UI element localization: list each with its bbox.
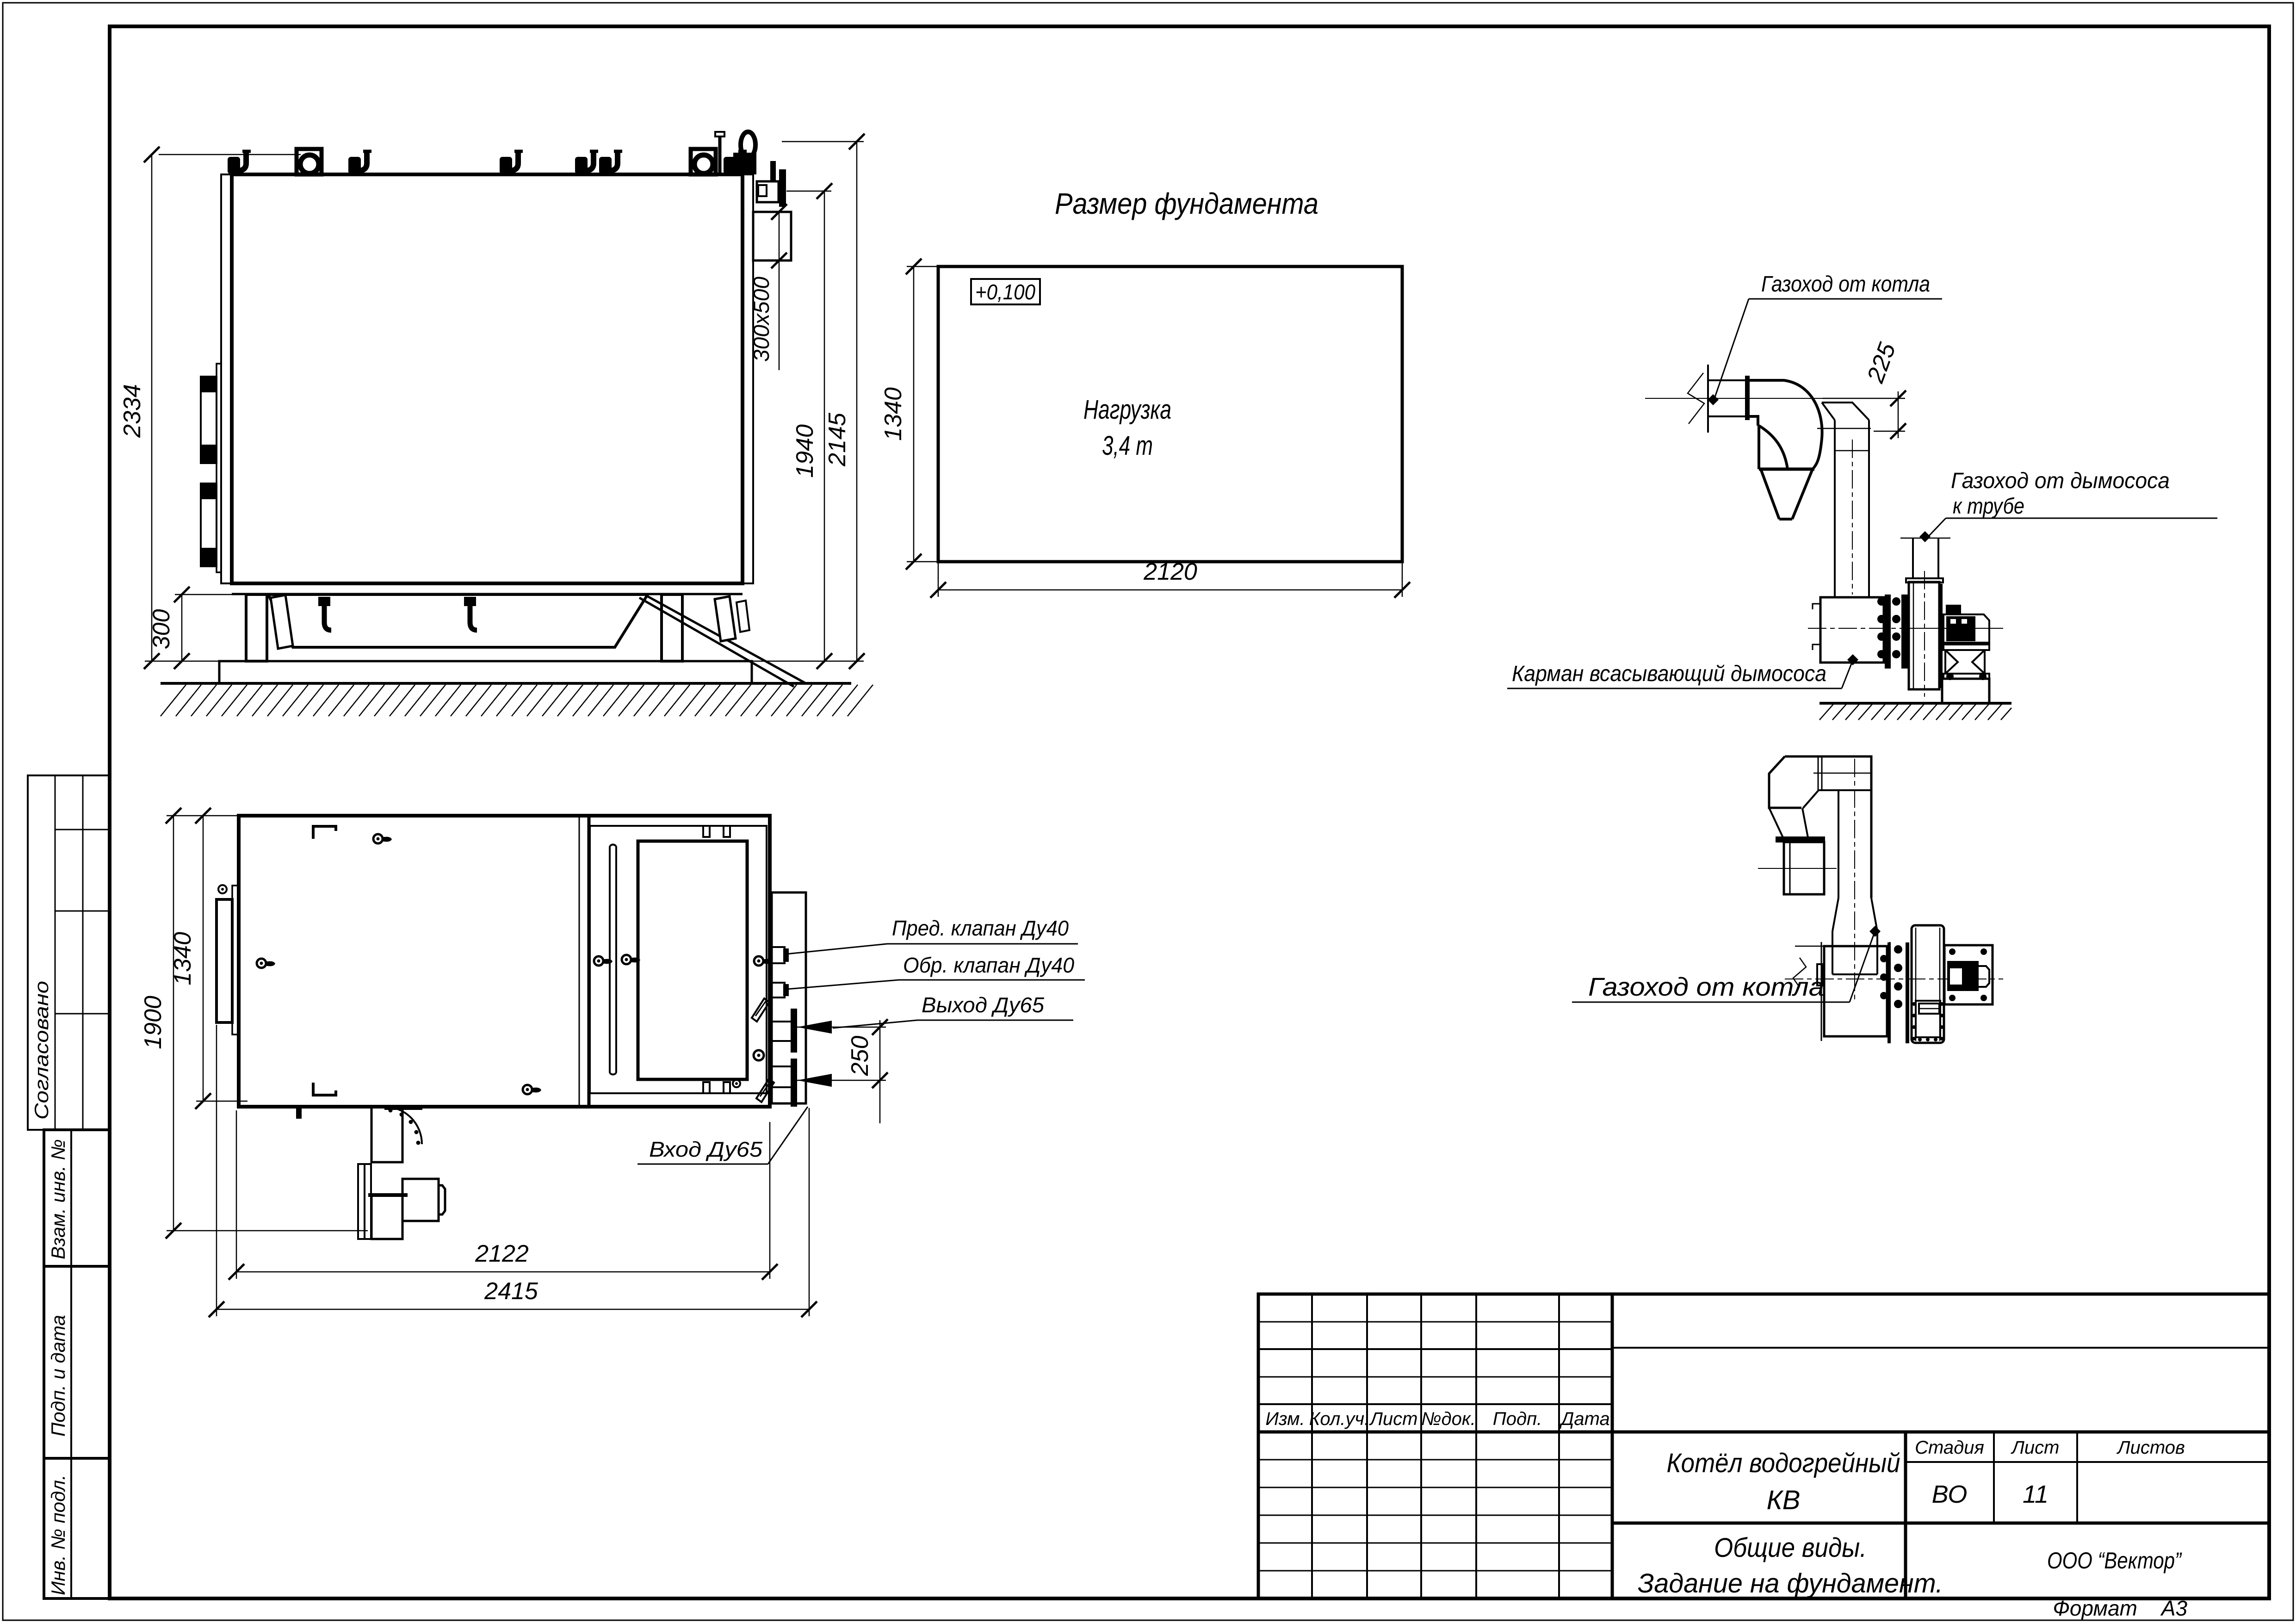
svg-text:Обр. клапан Ду40: Обр. клапан Ду40	[903, 953, 1074, 977]
svg-text:Взам. инв. №: Взам. инв. №	[47, 1139, 69, 1259]
svg-text:Карман всасывающий дымососа: Карман всасывающий дымососа	[1512, 662, 1826, 686]
svg-text:+0,100: +0,100	[975, 280, 1035, 304]
svg-text:Вход Ду65: Вход Ду65	[649, 1137, 762, 1161]
svg-text:300: 300	[148, 609, 175, 650]
svg-text:2334: 2334	[119, 384, 146, 438]
svg-text:Инв. № подл.: Инв. № подл.	[47, 1474, 69, 1595]
svg-text:2120: 2120	[1143, 558, 1197, 585]
svg-text:Газоход от дымососа: Газоход от дымососа	[1951, 469, 2170, 493]
svg-text:Подп. и дата: Подп. и дата	[47, 1315, 69, 1437]
svg-text:Газоход от котла: Газоход от котла	[1588, 972, 1824, 1001]
svg-text:Задание на фундамент.: Задание на фундамент.	[1638, 1568, 1943, 1598]
svg-text:А3: А3	[2160, 1596, 2188, 1620]
svg-text:1340: 1340	[169, 932, 196, 985]
svg-text:Подп.: Подп.	[1493, 1409, 1542, 1429]
svg-text:250: 250	[847, 1036, 873, 1077]
svg-text:ООО “Вектор”: ООО “Вектор”	[2047, 1548, 2182, 1573]
svg-text:Общие виды.: Общие виды.	[1714, 1533, 1867, 1563]
svg-text:Дата: Дата	[1559, 1409, 1610, 1429]
svg-text:Лист: Лист	[2011, 1437, 2060, 1458]
svg-text:КВ: КВ	[1767, 1485, 1801, 1515]
svg-text:Стадия: Стадия	[1915, 1437, 1984, 1458]
svg-text:1900: 1900	[140, 996, 167, 1049]
svg-text:Листов: Листов	[2116, 1437, 2185, 1458]
svg-text:Размер фундамента: Размер фундамента	[1055, 187, 1318, 220]
svg-text:Выход Ду65: Выход Ду65	[922, 993, 1044, 1017]
svg-text:2122: 2122	[475, 1240, 529, 1267]
svg-text:Согласовано: Согласовано	[31, 981, 52, 1120]
svg-text:11: 11	[2023, 1481, 2048, 1508]
svg-text:2415: 2415	[484, 1278, 538, 1305]
svg-text:3,4 т: 3,4 т	[1102, 431, 1153, 461]
svg-text:№док.: №док.	[1421, 1409, 1476, 1429]
svg-text:1340: 1340	[880, 387, 907, 441]
svg-text:300х500: 300х500	[749, 277, 774, 362]
svg-text:Нагрузка: Нагрузка	[1083, 395, 1171, 425]
svg-text:к трубе: к трубе	[1953, 494, 2024, 519]
svg-text:ВО: ВО	[1932, 1481, 1968, 1508]
svg-text:Формат: Формат	[2053, 1596, 2137, 1620]
svg-text:Газоход от котла: Газоход от котла	[1761, 272, 1930, 297]
svg-text:Кол.уч.: Кол.уч.	[1309, 1409, 1369, 1429]
svg-text:Изм.: Изм.	[1265, 1409, 1305, 1429]
svg-text:1940: 1940	[792, 424, 818, 478]
svg-text:Пред. клапан Ду40: Пред. клапан Ду40	[892, 916, 1069, 940]
svg-text:2145: 2145	[824, 412, 851, 467]
svg-text:Котёл водогрейный: Котёл водогрейный	[1667, 1448, 1900, 1478]
svg-text:Лист: Лист	[1369, 1409, 1418, 1429]
